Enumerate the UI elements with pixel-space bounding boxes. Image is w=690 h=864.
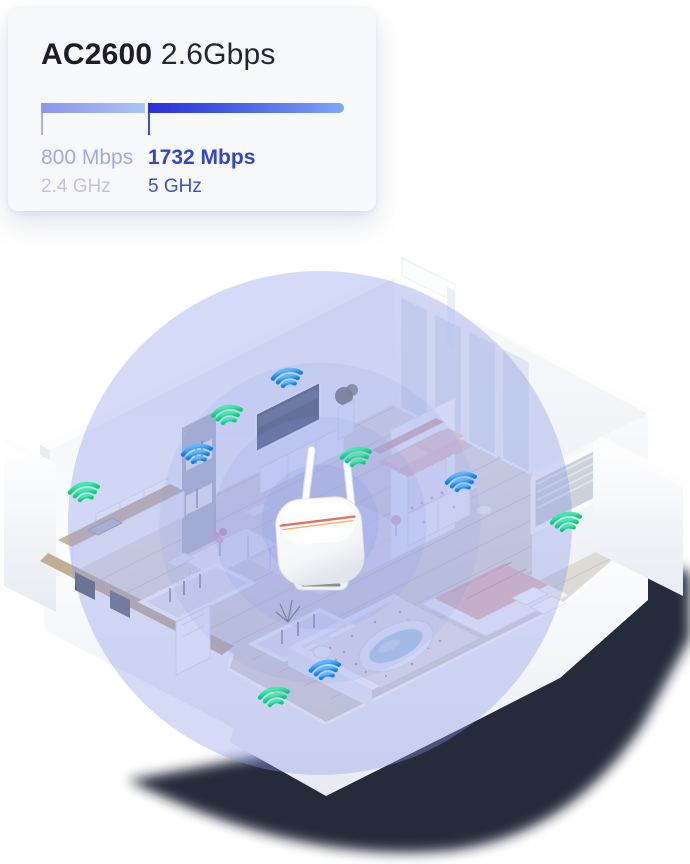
band-2g-frequency: 2.4 GHz bbox=[41, 175, 133, 199]
model-name: AC2600 bbox=[41, 38, 152, 71]
band-2g: 800 Mbps 2.4 GHz bbox=[41, 145, 133, 199]
speed-bar-segment-5g bbox=[148, 103, 344, 113]
band-5g: 1732 Mbps 5 GHz bbox=[148, 145, 255, 199]
spec-card: AC2600 2.6Gbps 800 Mbps 2.4 GHz 1732 Mbp… bbox=[8, 8, 376, 211]
total-speed: 2.6Gbps bbox=[161, 38, 276, 71]
page: AC2600 2.6Gbps 800 Mbps 2.4 GHz 1732 Mbp… bbox=[0, 0, 690, 864]
bar-tick-5g bbox=[148, 113, 150, 135]
bar-tick-2g bbox=[41, 113, 43, 135]
band-2g-speed: 800 Mbps bbox=[41, 145, 133, 171]
speed-bar bbox=[41, 103, 344, 113]
band-5g-frequency: 5 GHz bbox=[148, 175, 255, 199]
exterior-wall-left bbox=[4, 437, 56, 612]
speed-bar-segment-2g bbox=[41, 103, 145, 113]
card-title: AC2600 2.6Gbps bbox=[41, 38, 276, 72]
router-body bbox=[274, 495, 366, 587]
band-5g-speed: 1732 Mbps bbox=[148, 145, 255, 171]
